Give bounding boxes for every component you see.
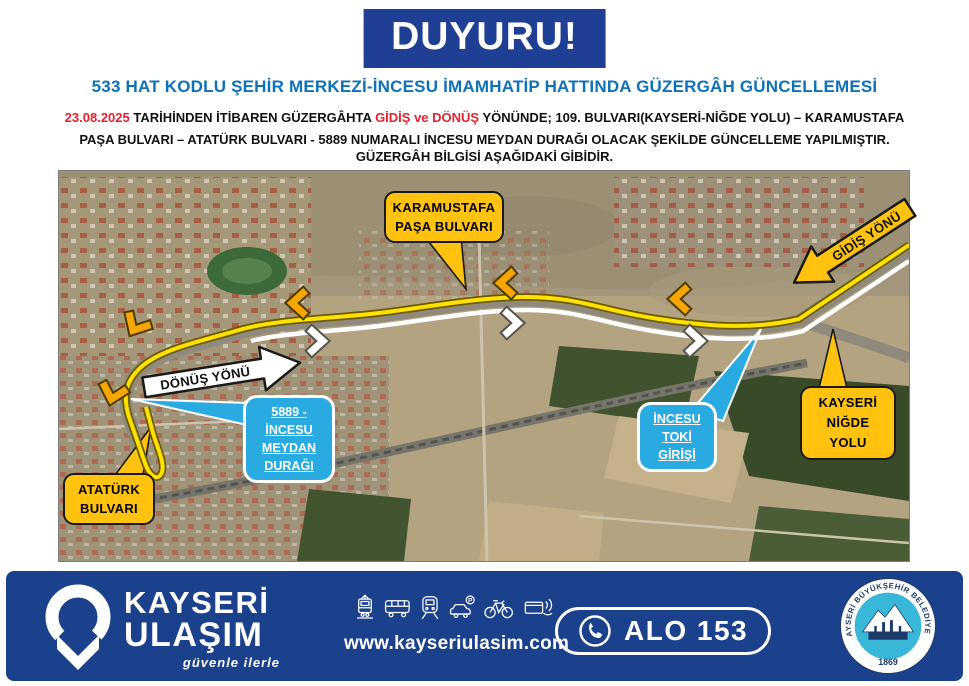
label-line: KARAMUSTAFA bbox=[389, 198, 499, 217]
brand-tagline: güvenle ilerle bbox=[124, 655, 280, 670]
route-info-note: GÜZERGÂH BİLGİSİ AŞAĞIDAKİ GİBİDİR. bbox=[0, 149, 969, 164]
announcement-body: 23.08.2025 TARİHİNDEN İTİBAREN GÜZERGÂHT… bbox=[58, 107, 911, 151]
label-incesu-toki-girisi: İNCESU TOKİ GİRİŞİ bbox=[637, 402, 717, 472]
metro-icon bbox=[419, 591, 441, 623]
label-line: YOLU bbox=[805, 433, 891, 453]
tram-icon bbox=[354, 591, 376, 623]
announcement-banner: DUYURU! bbox=[363, 9, 606, 68]
label-5889-incesu-meydan-duragi: 5889 - İNCESU MEYDAN DURAĞI bbox=[243, 395, 335, 483]
label-line: İNCESU bbox=[249, 421, 329, 439]
bicycle-icon bbox=[483, 591, 514, 623]
donus-word: DÖNÜŞ bbox=[432, 110, 479, 125]
label-line: MEYDAN bbox=[249, 439, 329, 457]
label-karamustafa-pasa-bulvari: KARAMUSTAFA PAŞA BULVARI bbox=[384, 191, 504, 243]
alo-153-contact: ALO 153 bbox=[555, 607, 771, 655]
car-parking-icon: P bbox=[449, 591, 476, 623]
label-line: NİĞDE bbox=[805, 413, 891, 433]
brand-line2: ULAŞIM bbox=[124, 619, 269, 651]
website-url: www.kayseriulasim.com bbox=[344, 633, 564, 655]
phone-icon bbox=[578, 614, 612, 648]
gidis-word: GİDİŞ bbox=[375, 110, 410, 125]
label-line: İNCESU bbox=[643, 410, 711, 428]
municipality-badge: KAYSERİ BÜYÜKŞEHİR BELEDİYESİ 1869 bbox=[839, 577, 937, 675]
kayseri-ulasim-pin-logo bbox=[32, 579, 124, 675]
label-line: GİRİŞİ bbox=[643, 446, 711, 464]
label-line: ATATÜRK bbox=[68, 480, 150, 499]
transport-icons: P bbox=[354, 591, 554, 623]
card-payment-icon bbox=[523, 591, 554, 623]
route-update-title: 533 HAT KODLU ŞEHİR MERKEZİ-İNCESU İMAMH… bbox=[0, 77, 969, 97]
label-line: DURAĞI bbox=[249, 457, 329, 475]
ve-word: ve bbox=[410, 110, 432, 125]
label-line: 5889 - bbox=[249, 403, 329, 421]
footer-bar: KAYSERİ ULAŞIM güvenle ilerle P bbox=[6, 571, 963, 681]
phone-number: ALO 153 bbox=[624, 615, 748, 647]
label-line: BULVARI bbox=[68, 499, 150, 518]
bus-icon bbox=[384, 591, 411, 623]
satellite-route-map: KARAMUSTAFA PAŞA BULVARI KAYSERİ NİĞDE Y… bbox=[58, 170, 910, 562]
label-kayseri-nigde-yolu: KAYSERİ NİĞDE YOLU bbox=[800, 386, 896, 460]
badge-year-text: 1869 bbox=[878, 657, 898, 667]
brand-name: KAYSERİ ULAŞIM bbox=[124, 587, 269, 651]
effective-date: 23.08.2025 bbox=[65, 110, 130, 125]
label-ataturk-bulvari: ATATÜRK BULVARI bbox=[63, 473, 155, 525]
brand-line1: KAYSERİ bbox=[124, 587, 269, 619]
label-line: PAŞA BULVARI bbox=[389, 217, 499, 236]
body-seg1: TARİHİNDEN İTİBAREN GÜZERGÂHTA bbox=[130, 110, 375, 125]
label-line: KAYSERİ bbox=[805, 393, 891, 413]
label-line: TOKİ bbox=[643, 428, 711, 446]
parking-letter: P bbox=[468, 597, 472, 604]
